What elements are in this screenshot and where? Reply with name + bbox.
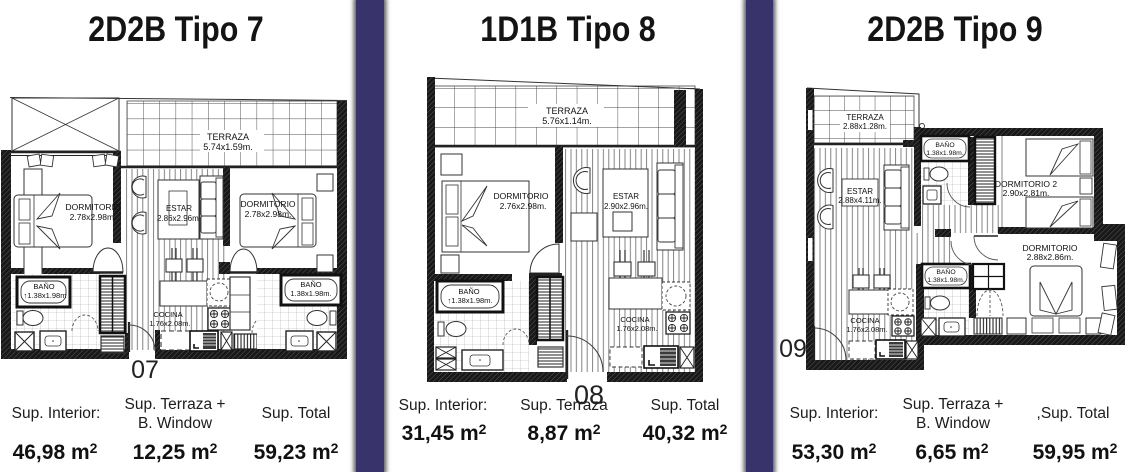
svg-text:1.38x1.98m.: 1.38x1.98m.	[927, 277, 965, 284]
svg-text:BAÑO: BAÑO	[33, 282, 54, 291]
svg-text:1.76x2.08m.: 1.76x2.08m.	[846, 325, 887, 334]
svg-text:1.38x1.98m.: 1.38x1.98m.	[926, 150, 964, 157]
svg-text:BAÑO: BAÑO	[936, 267, 955, 276]
svg-text:BAÑO: BAÑO	[458, 287, 479, 296]
svg-text:DORMITORIO: DORMITORIO	[240, 199, 295, 209]
svg-text:TERRAZA: TERRAZA	[546, 106, 588, 116]
svg-text:2.90x2.96m.: 2.90x2.96m.	[604, 202, 648, 211]
svg-text:TERRAZA: TERRAZA	[207, 132, 249, 142]
svg-text:2.86x2.96m.: 2.86x2.96m.	[157, 214, 201, 223]
svg-text:1.76x2.08m.: 1.76x2.08m.	[149, 319, 190, 328]
svg-text:5.74x1.59m.: 5.74x1.59m.	[203, 142, 253, 152]
svg-text:5.76x1.14m.: 5.76x1.14m.	[542, 116, 592, 126]
svg-text:ESTAR: ESTAR	[847, 187, 873, 196]
svg-text:09: 09	[779, 335, 807, 363]
svg-text:COCINA: COCINA	[620, 315, 649, 324]
svg-text:ESTAR: ESTAR	[613, 192, 639, 201]
svg-text:TERRAZA: TERRAZA	[846, 113, 884, 122]
svg-text:DORMITORIO: DORMITORIO	[493, 191, 548, 201]
svg-text:2.88x4.11m.: 2.88x4.11m.	[838, 196, 881, 205]
svg-text:ESTAR: ESTAR	[166, 204, 192, 213]
svg-text:2.78x2.98m.: 2.78x2.98m.	[70, 212, 117, 222]
svg-text:BAÑO: BAÑO	[300, 280, 321, 289]
svg-text:COCINA: COCINA	[153, 310, 182, 319]
svg-text:07: 07	[131, 356, 159, 384]
svg-text:2.88x1.28m.: 2.88x1.28m.	[843, 122, 887, 131]
svg-text:1.76x2.08m.: 1.76x2.08m.	[616, 324, 657, 333]
svg-text:DORMITORIO: DORMITORIO	[65, 202, 120, 212]
svg-text:1.38x1.98m.: 1.38x1.98m.	[290, 289, 331, 298]
svg-text:↑1.38x1.98m: ↑1.38x1.98m	[24, 291, 67, 300]
svg-text:2.90x2.81m.: 2.90x2.81m.	[1003, 188, 1050, 198]
svg-text:↑1.38x1.98m.: ↑1.38x1.98m.	[447, 296, 492, 305]
svg-text:BAÑO: BAÑO	[935, 140, 954, 149]
svg-text:2.88x2.86m.: 2.88x2.86m.	[1027, 252, 1074, 262]
svg-text:2.78x2.98m.: 2.78x2.98m.	[245, 209, 292, 219]
svg-text:2.76x2.98m.: 2.76x2.98m.	[500, 201, 547, 211]
svg-text:COCINA: COCINA	[850, 316, 879, 325]
